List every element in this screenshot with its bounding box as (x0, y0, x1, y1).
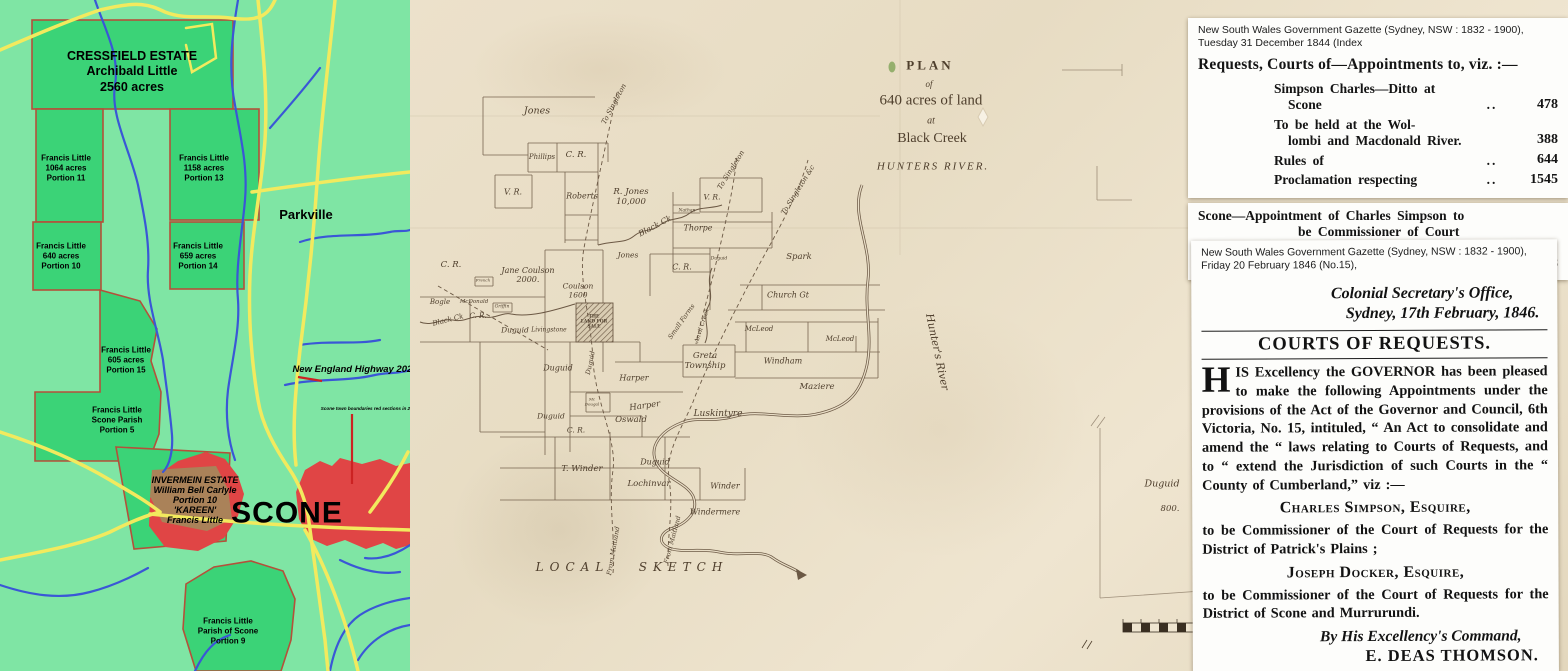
portion-13-label: Francis Little 1158 acres Portion 13 (179, 153, 229, 182)
label-roberts: Roberts (566, 191, 598, 200)
label-local-sketch: LOCAL SKETCH (536, 561, 729, 575)
index-entry-page: 478 (1512, 97, 1558, 114)
label-small-farms: Small Farms (667, 303, 697, 341)
label-livingstone: Livingstone (531, 328, 566, 335)
notice-signature: E. DEAS THOMSON. (1203, 645, 1549, 667)
label-from-maitland-2: From Maitland (663, 515, 683, 565)
label-griffin: Griffin (495, 304, 510, 309)
label-r-jones: R. Jones 10,000 (613, 188, 648, 208)
estate-map-graphic (0, 0, 410, 671)
notice-name-docker: Joseph Docker, Esquire, (1202, 563, 1548, 583)
label-nathan: Nathan (679, 208, 696, 213)
portion-11-label: Francis Little 1064 acres Portion 11 (41, 153, 91, 182)
plan-title-of: of (925, 79, 932, 89)
rule-top (1201, 329, 1547, 332)
gazette-notice-source-line1: New South Wales Government Gazette (Sydn… (1201, 245, 1547, 260)
notice-paragraph-text: IS Excellency the GOVERNOR has been plea… (1202, 363, 1548, 493)
label-mcdougal: Mc Dougal (585, 397, 599, 406)
notice-office-line2: Sydney, 17th February, 1846. (1201, 303, 1547, 325)
index-entry: Simpson Charles—Ditto atScone..478 (1274, 81, 1558, 113)
plan-title-black-creek: Black Creek (897, 131, 967, 147)
label-coulson: Coulson 1600 (563, 282, 594, 299)
notice-para-docker: to be Commissioner of the Court of Reque… (1203, 585, 1549, 624)
notice-heading: COURTS OF REQUESTS. (1201, 333, 1547, 356)
label-duguid-800: Duguid (1144, 480, 1179, 491)
label-vr-2: V. R. (704, 194, 721, 203)
label-greta-township: Greta Township (685, 352, 726, 372)
boundary-note-label: Scone town boundaries red sections in 20… (321, 406, 410, 412)
label-mcleod-1: McLeod (745, 325, 774, 333)
plan-title-at: at (927, 115, 935, 127)
notice-dropcap: H (1202, 366, 1231, 396)
rule-bottom (1202, 357, 1548, 360)
label-maziere: Maziere (799, 383, 834, 393)
portion-5-label: Francis Little Scone Parish Portion 5 (92, 405, 143, 434)
portion-10-label: Francis Little 640 acres Portion 10 (36, 241, 86, 270)
label-phillips: Phillips (529, 153, 555, 161)
gazette-index-card: New South Wales Government Gazette (Sydn… (1188, 18, 1568, 198)
notice-para-simpson: to be Commissioner of the Court of Reque… (1202, 521, 1548, 560)
index-entry-page: 644 (1512, 152, 1558, 169)
label-t-winder: T. Winder (561, 465, 602, 475)
notice-name-simpson: Charles Simpson, Esquire, (1202, 499, 1548, 519)
label-cr-4: C. R. (441, 261, 462, 271)
plan-title-plan: PLAN (906, 59, 953, 74)
portion-15-label: Francis Little 605 acres Portion 15 (101, 345, 151, 374)
label-cr-2: C. R. (672, 262, 692, 271)
gazette-notice-source-line2: Friday 20 February 1846 (No.15), (1201, 258, 1547, 273)
portion-9-label: Francis Little Parish of Scone Portion 9 (198, 616, 258, 645)
index-entry: To be held at the Wol-lombi and Macdonal… (1274, 117, 1558, 149)
label-anvil-creek: Anvil Creek (694, 308, 712, 344)
label-winder: Winder (710, 481, 739, 490)
notice-office-line1: Colonial Secretary's Office, (1201, 283, 1547, 305)
portion-14-label: Francis Little 659 acres Portion 14 (173, 241, 223, 270)
label-duguid-3: Duguid (537, 413, 565, 422)
label-cr-1: C. R. (566, 151, 587, 161)
label-jane-coulson: Jane Coulson 2000. (501, 266, 554, 284)
parkville-label: Parkville (279, 207, 333, 223)
label-cr-3: C. R. (567, 427, 585, 436)
label-duguid-4: Duguid (640, 457, 670, 466)
notice-paragraph: HIS Excellency the GOVERNOR has been ple… (1202, 362, 1549, 495)
label-windermere: Windermere (690, 507, 740, 516)
label-duguid-small: Duguid (711, 256, 728, 261)
label-duguid-vertical: Duguid (585, 350, 597, 375)
highway-label: New England Highway 2022 (292, 364, 410, 376)
label-lochinvar: Lochinvar (627, 480, 670, 490)
label-church-gt: Church Gt (767, 290, 809, 299)
index-entry-page: 388 (1512, 132, 1558, 149)
label-oswald: Oswald (615, 416, 647, 426)
label-to-singleton-3: To Singleton &c (780, 164, 817, 217)
label-luskintyre: Luskintyre (694, 409, 743, 419)
label-black-ck-2: Black Ck (432, 312, 465, 327)
label-mcdonald: McDonald (460, 299, 489, 305)
label-jones-2: Jones (618, 252, 639, 261)
estate-map: CRESSFIELD ESTATE Archibald Little 2560 … (0, 0, 410, 671)
label-harper-2: Harper (629, 400, 661, 414)
label-vr-1: V. R. (504, 187, 522, 196)
gazette-index-entries: Simpson Charles—Ditto atScone..478To be … (1274, 81, 1558, 188)
label-spark: Spark (786, 253, 812, 263)
collage-stage: CRESSFIELD ESTATE Archibald Little 2560 … (0, 0, 1568, 671)
plan-title-acres: 640 acres of land (880, 92, 983, 109)
gazette-index-heading: Requests, Courts of—Appointments to, viz… (1198, 56, 1558, 74)
index-entry-page: 1545 (1512, 172, 1558, 189)
label-bogle: Bogle (430, 298, 450, 306)
label-harper-1: Harper (619, 373, 648, 382)
label-french: French (476, 279, 490, 284)
label-jones-1: Jones (524, 107, 550, 118)
plan-title-hunters-river: HUNTERS RIVER. (877, 161, 989, 174)
label-to-singleton-1: To Singleton (600, 82, 628, 125)
label-land-for-sale: THE LAND FOR SALE (581, 314, 607, 329)
invermein-label: INVERMEIN ESTATE William Bell Carlyle Po… (152, 475, 239, 525)
label-duguid-1: Duguid (501, 327, 529, 336)
label-thorpe: Thorpe (684, 223, 713, 232)
scone-label: SCONE (231, 496, 343, 533)
index-entry: Proclamation respecting..1545 (1274, 172, 1558, 189)
label-duguid-2: Duguid (543, 363, 573, 372)
label-800-acres: 800. (1161, 505, 1180, 515)
label-windham: Windham (764, 356, 802, 365)
label-cr-5: C. R. (469, 312, 486, 320)
cressfield-label: CRESSFIELD ESTATE Archibald Little 2560 … (67, 49, 197, 95)
gazette-notice-clipping: New South Wales Government Gazette (Sydn… (1191, 239, 1559, 671)
index-entry: Rules of..644 (1274, 152, 1558, 169)
label-mcleod-2: McLeod (826, 335, 855, 343)
gazette-notice-body: Colonial Secretary's Office, Sydney, 17t… (1201, 283, 1549, 666)
notice-command-line: By His Excellency's Command, (1203, 627, 1549, 647)
gazette-index-source-line2: Tuesday 31 December 1844 (Index (1198, 37, 1558, 50)
label-black-ck-1: Black Ck (637, 213, 673, 238)
label-to-singleton-2: To Singleton (716, 149, 746, 191)
label-hunters-river: Hunter's River (923, 313, 951, 392)
gazette-index-source-line1: New South Wales Government Gazette (Sydn… (1198, 24, 1558, 37)
